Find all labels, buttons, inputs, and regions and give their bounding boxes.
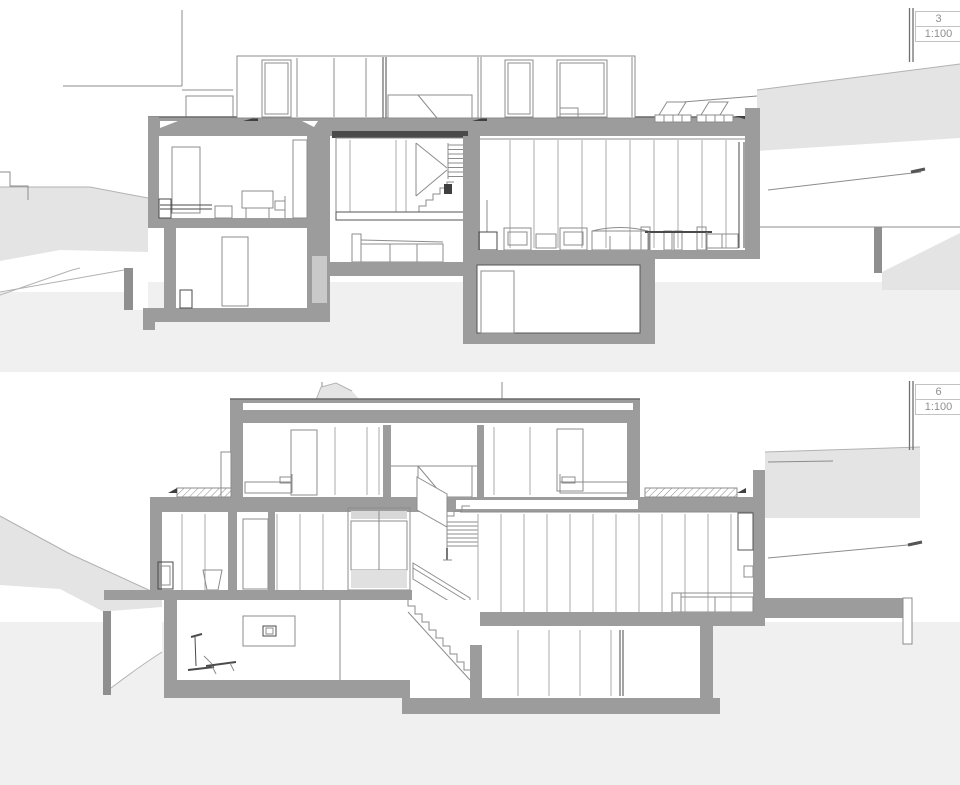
- sliding-glass-door: [348, 508, 410, 590]
- terrain-right: [765, 447, 920, 518]
- section-3-drawing: [0, 8, 960, 372]
- section-3-reference-line: [910, 8, 914, 62]
- door: [243, 519, 268, 589]
- sofa: [672, 593, 753, 612]
- section-6-reference-line: [910, 381, 914, 450]
- drawing-number: 3: [916, 12, 960, 26]
- label-box-section-3: 3 1:100: [915, 11, 960, 42]
- section-3-background-lines: [0, 10, 233, 200]
- toilet: [203, 570, 222, 590]
- retaining-wall-right: [874, 227, 882, 273]
- sofa: [592, 231, 648, 250]
- section-3-basement: [463, 259, 655, 344]
- section-3-left-block: [143, 117, 330, 330]
- section-3-stair-bay: [330, 131, 470, 276]
- section-6-drawing: [0, 381, 960, 785]
- dining-set: [641, 227, 712, 250]
- door: [291, 430, 317, 495]
- drawing-sheet: 3 1:100 6 1:100: [0, 0, 960, 785]
- drawing-scale: 1:100: [916, 26, 960, 41]
- side-table: [536, 234, 556, 248]
- sofa: [352, 234, 443, 262]
- bed: [245, 474, 292, 493]
- glazing-mullions: [478, 514, 731, 614]
- terrace-slab: [765, 598, 907, 618]
- deck-chair: [697, 102, 733, 122]
- deck-hatch: [645, 488, 737, 497]
- bed: [560, 474, 628, 493]
- deck-chair: [655, 102, 691, 122]
- chair: [275, 201, 285, 210]
- cupboard: [293, 140, 307, 218]
- living-furniture: [479, 200, 738, 250]
- terrace-post: [903, 598, 912, 644]
- retaining-wall-left: [103, 611, 111, 695]
- section-6-roof-slab: [230, 399, 640, 423]
- section-6-basement: [104, 590, 720, 714]
- drawing-scale: 1:100: [916, 399, 960, 414]
- section-3-upper-floor-elevation: [237, 56, 635, 118]
- sections-canvas: [0, 0, 960, 785]
- door: [172, 147, 200, 213]
- desk: [242, 191, 273, 208]
- window: [738, 513, 753, 550]
- retaining-wall-left: [124, 268, 133, 310]
- deck-hatch: [177, 488, 231, 497]
- drawing-number: 6: [916, 385, 960, 399]
- stair: [412, 143, 466, 212]
- stool: [215, 206, 232, 218]
- label-box-section-6: 6 1:100: [915, 384, 960, 415]
